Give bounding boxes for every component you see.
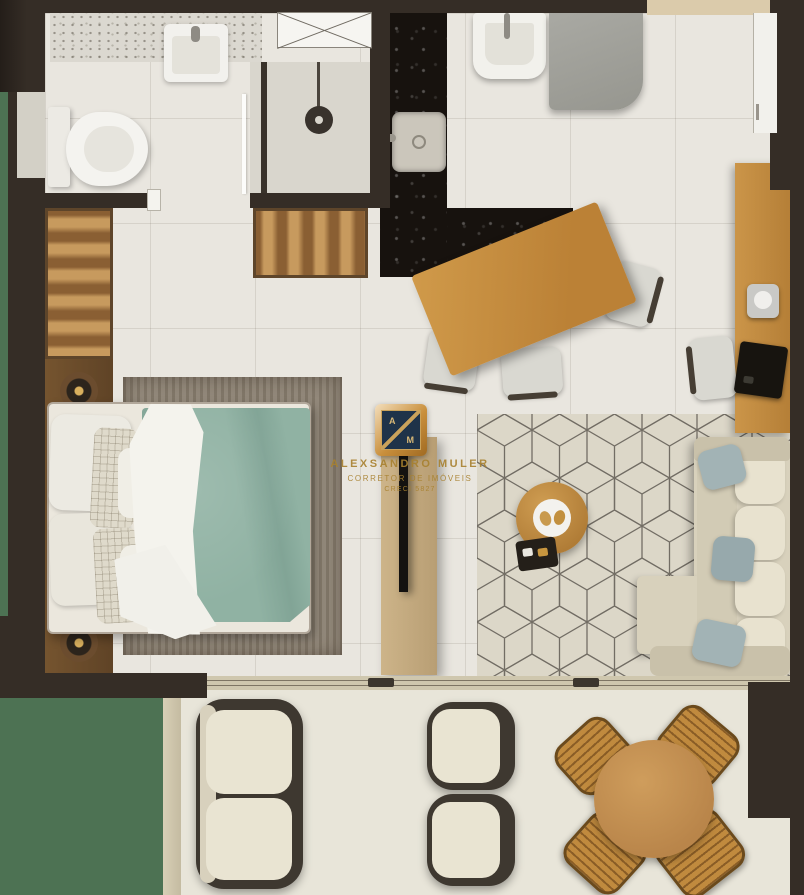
croissant-1 [538,510,553,528]
wall-balcony-pillar [748,682,790,818]
sliding-door-handle-2 [573,678,599,687]
watermark-name: ALEXSANDRO MULER [325,458,495,470]
watermark-logo-monogram: A M [381,410,421,450]
grass-bottom-left [0,698,163,895]
wall-bath-bottom-left [45,193,148,208]
watermark-title: CORRETOR DE IMÓVEIS [325,474,495,483]
shower-partition [261,62,267,193]
watermark-logo: A M [375,404,427,456]
wall-top-left-corner [0,0,45,92]
shower-arm [317,62,320,110]
shower-skylight [277,12,372,48]
tray-item-2 [537,548,548,557]
laundry-sink [473,13,546,79]
bathroom-door [147,189,161,211]
watermark-license: CRECI 5827 [325,486,495,493]
shower-head-icon [305,106,333,134]
desk-chair [688,335,738,401]
loveseat-cushion-1 [206,710,292,794]
toilet-bowl [66,112,148,186]
tray-item-1 [522,548,533,557]
wall-bath-bottom-right [250,193,370,208]
serving-tray [515,536,559,571]
sliding-door-handle-1 [368,678,394,687]
wall-right [790,150,804,895]
watermark-text: ALEXSANDRO MULER CORRETOR DE IMÓVEIS CRE… [325,458,495,493]
slatted-shelf-horizontal [253,208,368,278]
croissant-2 [552,509,567,526]
balcony-armchair-1 [427,702,515,790]
laundry-faucet [504,13,510,39]
laptop-touchpad [743,376,754,384]
armchair-2-cushion [432,802,500,878]
apartment-floor-plan: A M ALEXSANDRO MULER CORRETOR DE IMÓVEIS… [0,0,804,895]
slatted-shelf-vertical [45,208,113,359]
balcony-round-table [594,740,714,858]
balcony-left-ledge [163,690,181,895]
bathroom-sink [164,24,228,82]
wall-bath-kitchen [370,13,390,208]
window-behind-toilet [17,92,45,178]
kitchen-sink [392,112,446,172]
grass-strip-left [0,92,8,616]
sofa-pillow-2 [710,535,756,582]
wall-left-lower [0,616,45,698]
washing-machine [549,13,643,110]
balcony-loveseat [196,699,303,889]
coffee-maker-top [754,291,772,309]
bathroom-counter [50,13,262,62]
open-cabinet-door [753,13,777,133]
logo-letter-a: A [389,416,396,426]
coffee-table-plate [533,499,571,537]
kitchen-sink-drain [412,135,426,149]
dining-chair-middle [500,346,563,398]
laptop [734,341,789,399]
shower-head-center [315,116,323,124]
cabinet-door-handle [756,104,759,120]
logo-letter-m: M [407,435,415,445]
sliding-door-track [207,676,790,690]
balcony-armchair-2 [427,794,515,886]
bathroom-faucet [191,26,200,42]
armchair-1-cushion [432,709,500,783]
coffee-maker [747,284,779,318]
sofa-ottoman [637,576,701,654]
shower-glass-door [242,94,246,194]
upper-counter-cream [647,0,770,15]
toilet-seat [84,126,134,172]
loveseat-cushion-2 [206,798,292,880]
